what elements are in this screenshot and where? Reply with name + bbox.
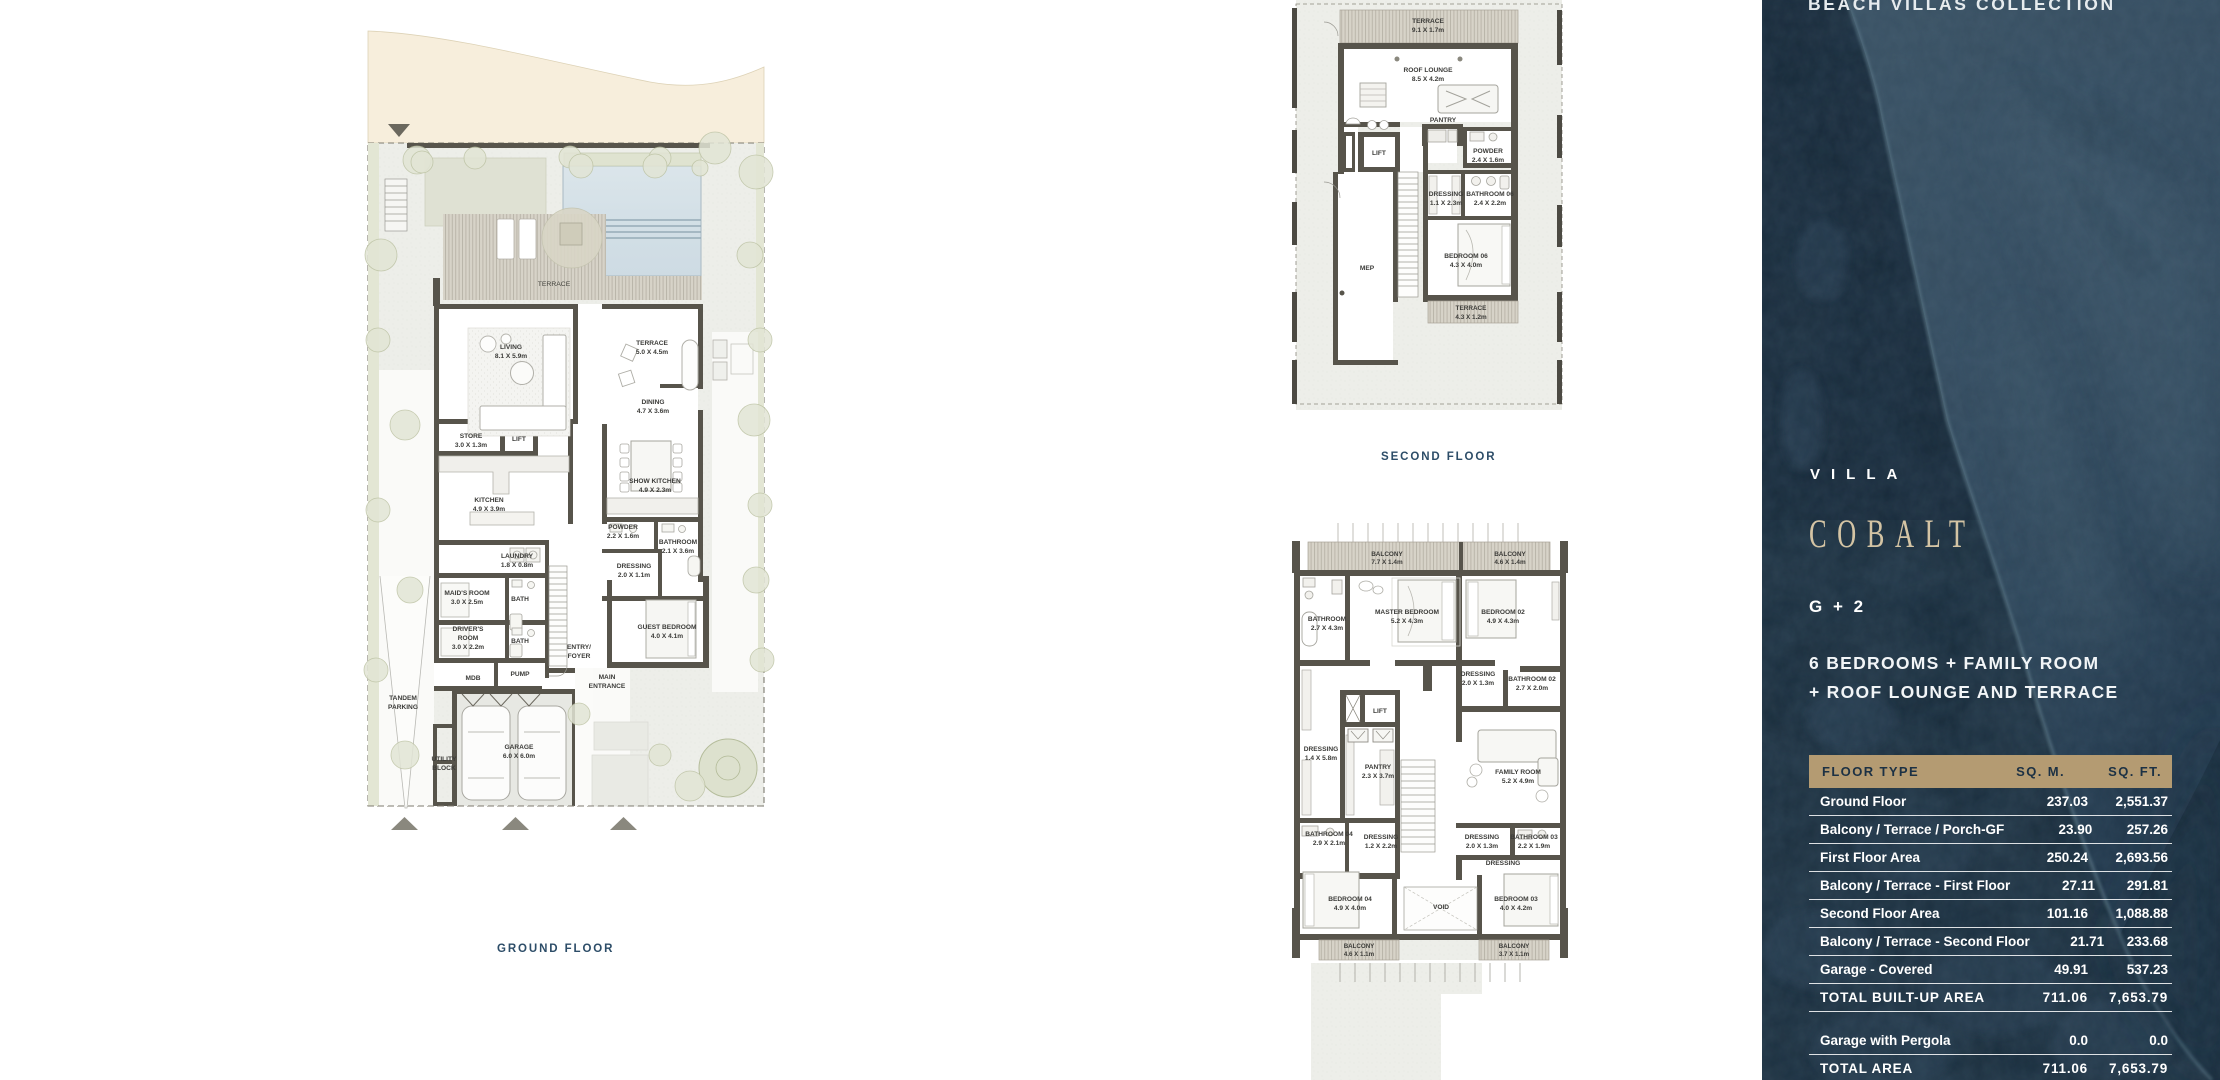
svg-text:PARKING: PARKING (388, 704, 418, 711)
svg-text:BEDROOM 03: BEDROOM 03 (1494, 896, 1538, 903)
svg-text:3.0 X 2.5m: 3.0 X 2.5m (451, 599, 483, 606)
svg-text:PANTRY: PANTRY (1430, 117, 1457, 124)
svg-text:8.1 X 5.9m: 8.1 X 5.9m (495, 353, 527, 360)
svg-text:UTILITY: UTILITY (432, 756, 458, 763)
svg-text:VOID: VOID (1433, 904, 1449, 911)
svg-text:DINING: DINING (641, 399, 664, 406)
svg-text:DRIVER'S: DRIVER'S (453, 626, 484, 633)
svg-text:BATHROOM 06: BATHROOM 06 (1466, 191, 1514, 198)
svg-text:2.0 X 1.3m: 2.0 X 1.3m (1462, 680, 1494, 687)
svg-text:2.0 X 1.3m: 2.0 X 1.3m (1466, 843, 1498, 850)
svg-text:3.0 X 1.3m: 3.0 X 1.3m (455, 442, 487, 449)
svg-text:2.3 X 3.7m: 2.3 X 3.7m (1362, 773, 1394, 780)
svg-text:DRESSING: DRESSING (1465, 834, 1499, 841)
svg-text:4.9 X 4.3m: 4.9 X 4.3m (1487, 618, 1519, 625)
svg-text:DRESSING: DRESSING (1461, 671, 1495, 678)
svg-text:4.3 X 1.2m: 4.3 X 1.2m (1455, 314, 1487, 321)
svg-text:ENTRY/: ENTRY/ (567, 644, 591, 651)
svg-text:2.9 X 2.1m: 2.9 X 2.1m (1313, 840, 1345, 847)
svg-text:PUMP: PUMP (510, 671, 530, 678)
svg-text:DRESSING: DRESSING (617, 563, 651, 570)
svg-text:DRESSING: DRESSING (1304, 746, 1338, 753)
svg-text:BEDROOM 04: BEDROOM 04 (1328, 896, 1372, 903)
svg-text:POWDER: POWDER (1473, 148, 1503, 155)
svg-text:TERRACE: TERRACE (538, 281, 571, 288)
svg-text:5.0 X 4.5m: 5.0 X 4.5m (636, 349, 668, 356)
svg-text:4.9 X 2.3m: 4.9 X 2.3m (639, 487, 671, 494)
svg-text:GUEST BEDROOM: GUEST BEDROOM (638, 624, 697, 631)
svg-text:BALCONY: BALCONY (1499, 943, 1530, 950)
svg-text:BEDROOM 06: BEDROOM 06 (1444, 253, 1488, 260)
svg-text:MEP: MEP (1360, 265, 1375, 272)
svg-text:BALCONY: BALCONY (1494, 551, 1526, 558)
svg-text:BATHROOM: BATHROOM (1308, 616, 1347, 623)
svg-text:1.8 X 0.8m: 1.8 X 0.8m (501, 562, 533, 569)
svg-text:MASTER BEDROOM: MASTER BEDROOM (1375, 609, 1440, 616)
svg-text:3.0 X 2.2m: 3.0 X 2.2m (452, 644, 484, 651)
svg-text:4.6 X 1.4m: 4.6 X 1.4m (1494, 559, 1526, 566)
svg-text:ROOF LOUNGE: ROOF LOUNGE (1403, 67, 1453, 74)
svg-text:BATHROOM: BATHROOM (659, 539, 698, 546)
svg-text:2.7 X 2.0m: 2.7 X 2.0m (1516, 685, 1548, 692)
svg-text:2.4 X 1.6m: 2.4 X 1.6m (1472, 157, 1504, 164)
svg-text:2.2 X 1.6m: 2.2 X 1.6m (607, 533, 639, 540)
svg-text:BATH: BATH (511, 596, 529, 603)
svg-text:LIFT: LIFT (512, 436, 526, 443)
svg-text:BLOCK: BLOCK (432, 765, 456, 772)
svg-text:4.6 X 1.1m: 4.6 X 1.1m (1344, 951, 1375, 958)
svg-text:TERRACE: TERRACE (1412, 18, 1444, 25)
svg-text:PANTRY: PANTRY (1365, 764, 1392, 771)
svg-text:TANDEM: TANDEM (389, 695, 417, 702)
svg-text:9.1 X 1.7m: 9.1 X 1.7m (1412, 27, 1444, 34)
svg-text:3.7 X 1.1m: 3.7 X 1.1m (1499, 951, 1530, 958)
svg-text:LIFT: LIFT (1373, 708, 1387, 715)
svg-text:ENTRANCE: ENTRANCE (589, 683, 626, 690)
svg-text:4.7 X 3.6m: 4.7 X 3.6m (637, 408, 669, 415)
svg-text:BEDROOM 02: BEDROOM 02 (1481, 609, 1525, 616)
svg-text:4.9 X 3.9m: 4.9 X 3.9m (473, 506, 505, 513)
svg-text:4.3 X 4.0m: 4.3 X 4.0m (1450, 262, 1482, 269)
svg-text:POWDER: POWDER (608, 524, 638, 531)
svg-text:DRESSING: DRESSING (1429, 191, 1463, 198)
svg-text:LAUNDRY: LAUNDRY (501, 553, 534, 560)
svg-text:DRESSING: DRESSING (1486, 860, 1520, 867)
svg-text:BALCONY: BALCONY (1371, 551, 1403, 558)
svg-text:1.1 X 2.3m: 1.1 X 2.3m (1430, 200, 1462, 207)
svg-text:8.5 X 4.2m: 8.5 X 4.2m (1412, 76, 1444, 83)
svg-text:2.0 X 1.1m: 2.0 X 1.1m (618, 572, 650, 579)
svg-text:1.2 X 2.2m: 1.2 X 2.2m (1365, 843, 1397, 850)
svg-text:ROOM: ROOM (458, 635, 479, 642)
svg-text:4.0 X 4.1m: 4.0 X 4.1m (651, 633, 683, 640)
svg-text:5.2 X 4.3m: 5.2 X 4.3m (1391, 618, 1423, 625)
svg-text:GARAGE: GARAGE (505, 744, 535, 751)
svg-text:LIFT: LIFT (1372, 150, 1386, 157)
svg-text:MAID'S ROOM: MAID'S ROOM (444, 590, 490, 597)
svg-text:2.1 X 3.6m: 2.1 X 3.6m (662, 548, 694, 555)
svg-text:2.7 X 4.3m: 2.7 X 4.3m (1311, 625, 1343, 632)
svg-text:7.7 X 1.4m: 7.7 X 1.4m (1371, 559, 1403, 566)
svg-text:MAIN: MAIN (599, 674, 616, 681)
svg-text:TERRACE: TERRACE (1456, 305, 1488, 312)
svg-text:LIVING: LIVING (500, 344, 522, 351)
svg-text:BATHROOM 03: BATHROOM 03 (1510, 834, 1558, 841)
svg-text:STORE: STORE (460, 433, 483, 440)
svg-text:FAMILY ROOM: FAMILY ROOM (1495, 769, 1541, 776)
svg-text:BATHROOM 04: BATHROOM 04 (1305, 831, 1353, 838)
svg-text:SHOW KITCHEN: SHOW KITCHEN (629, 478, 681, 485)
svg-text:BATH: BATH (511, 638, 529, 645)
svg-text:KITCHEN: KITCHEN (474, 497, 504, 504)
svg-text:6.0 X 6.0m: 6.0 X 6.0m (503, 753, 535, 760)
svg-text:BATHROOM 02: BATHROOM 02 (1508, 676, 1556, 683)
svg-text:2.2 X 1.9m: 2.2 X 1.9m (1518, 843, 1550, 850)
svg-text:TERRACE: TERRACE (636, 340, 668, 347)
svg-text:5.2 X 4.9m: 5.2 X 4.9m (1502, 778, 1534, 785)
svg-text:FOYER: FOYER (568, 653, 591, 660)
svg-text:4.0 X 4.2m: 4.0 X 4.2m (1500, 905, 1532, 912)
svg-text:1.4 X 5.8m: 1.4 X 5.8m (1305, 755, 1337, 762)
svg-text:BALCONY: BALCONY (1344, 943, 1375, 950)
svg-text:4.9 X 4.0m: 4.9 X 4.0m (1334, 905, 1366, 912)
svg-text:DRESSING: DRESSING (1364, 834, 1398, 841)
svg-text:2.4 X 2.2m: 2.4 X 2.2m (1474, 200, 1506, 207)
svg-text:MDB: MDB (465, 675, 480, 682)
